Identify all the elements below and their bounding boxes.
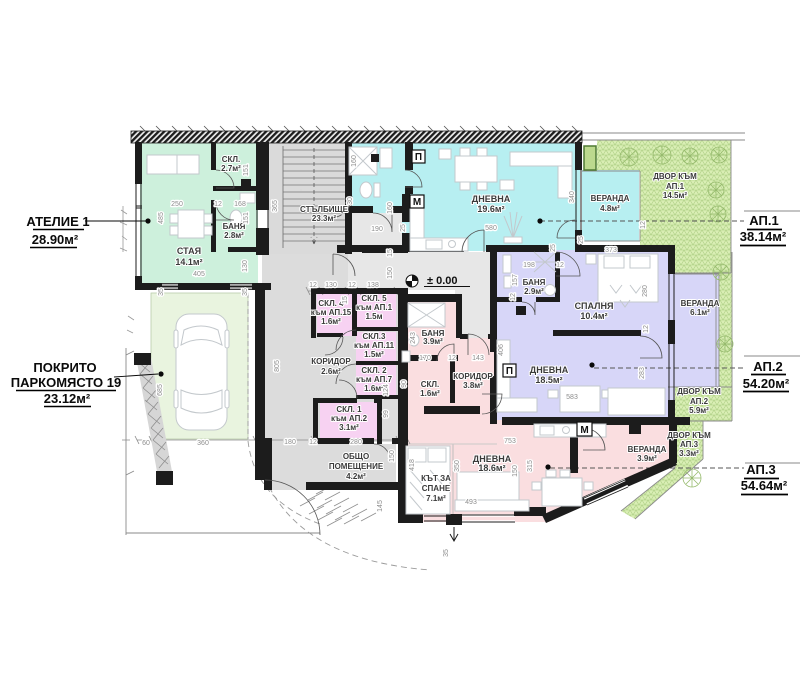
svg-text:180: 180 — [284, 439, 296, 446]
svg-text:ПОКРИТО: ПОКРИТО — [33, 360, 96, 375]
svg-text:150: 150 — [387, 267, 394, 279]
svg-text:КОРИДОР: КОРИДОР — [453, 372, 493, 381]
svg-text:АТЕЛИЕ 1: АТЕЛИЕ 1 — [26, 214, 89, 229]
svg-text:30: 30 — [347, 197, 354, 205]
svg-text:151: 151 — [243, 164, 250, 176]
svg-text:4.8м²: 4.8м² — [600, 204, 620, 213]
svg-text:към АП.2: към АП.2 — [331, 414, 368, 423]
svg-text:25: 25 — [578, 236, 585, 244]
svg-text:35: 35 — [443, 549, 450, 557]
svg-text:12: 12 — [348, 282, 356, 289]
svg-text:6.1м²: 6.1м² — [690, 308, 710, 317]
svg-text:25: 25 — [400, 224, 407, 232]
svg-text:18.5м²: 18.5м² — [535, 375, 562, 385]
svg-text:СКЛ. 4: СКЛ. 4 — [318, 299, 344, 308]
svg-text:1.6м²: 1.6м² — [364, 384, 384, 393]
svg-text:3.3м²: 3.3м² — [679, 449, 699, 458]
svg-text:ВЕРАНДА: ВЕРАНДА — [681, 299, 720, 308]
svg-text:18.6м²: 18.6м² — [478, 463, 505, 473]
svg-text:54.64м²: 54.64м² — [741, 478, 788, 493]
svg-text:М: М — [413, 197, 421, 208]
svg-text:160: 160 — [351, 155, 358, 167]
svg-text:СКЛ.3: СКЛ.3 — [363, 332, 386, 341]
svg-text:340: 340 — [569, 191, 576, 203]
svg-text:12: 12 — [510, 293, 517, 301]
svg-text:1.6м²: 1.6м² — [420, 389, 440, 398]
svg-text:ДНЕВНА: ДНЕВНА — [530, 365, 569, 375]
svg-text:АП.1: АП.1 — [666, 182, 685, 191]
svg-text:М: М — [580, 425, 588, 436]
svg-text:ПАРКОМЯСТО 19: ПАРКОМЯСТО 19 — [11, 375, 122, 390]
svg-text:5.9м²: 5.9м² — [689, 406, 709, 415]
svg-text:12: 12 — [214, 201, 222, 208]
svg-text:190: 190 — [371, 226, 383, 233]
svg-text:КОРИДОР: КОРИДОР — [311, 357, 351, 366]
svg-text:243: 243 — [410, 332, 417, 344]
svg-text:160: 160 — [387, 202, 394, 214]
svg-text:2.9м²: 2.9м² — [524, 287, 544, 296]
svg-text:към АП.1: към АП.1 — [356, 303, 393, 312]
svg-text:138: 138 — [367, 282, 379, 289]
svg-text:2.6м²: 2.6м² — [321, 367, 341, 376]
svg-text:583: 583 — [566, 394, 578, 401]
svg-text:25: 25 — [550, 244, 557, 252]
svg-text:198: 198 — [523, 262, 535, 269]
svg-text:КЪТ ЗА: КЪТ ЗА — [421, 474, 451, 483]
svg-text:280: 280 — [350, 439, 362, 446]
svg-text:753: 753 — [504, 438, 516, 445]
svg-text:250: 250 — [171, 201, 183, 208]
svg-text:П: П — [506, 366, 513, 377]
svg-text:10.4м²: 10.4м² — [580, 311, 607, 321]
svg-text:12: 12 — [448, 355, 456, 362]
svg-text:ОБЩО: ОБЩО — [343, 452, 369, 461]
svg-text:ДВОР КЪМ: ДВОР КЪМ — [667, 431, 711, 440]
svg-text:1.6м²: 1.6м² — [321, 317, 341, 326]
svg-text:124: 124 — [383, 384, 390, 396]
svg-text:ДНЕВНА: ДНЕВНА — [472, 194, 511, 204]
svg-text:1.5м: 1.5м — [365, 312, 382, 321]
svg-text:14.5м²: 14.5м² — [663, 191, 687, 200]
svg-text:170: 170 — [419, 355, 431, 362]
svg-text:АП.3: АП.3 — [746, 462, 775, 477]
svg-text:283: 283 — [639, 367, 646, 379]
svg-text:365: 365 — [272, 200, 279, 212]
svg-text:35: 35 — [242, 288, 249, 296]
svg-text:28.90м²: 28.90м² — [32, 232, 79, 247]
svg-text:360: 360 — [197, 440, 209, 447]
svg-text:АП.3: АП.3 — [680, 440, 699, 449]
svg-text:493: 493 — [465, 499, 477, 506]
svg-text:38.14м²: 38.14м² — [740, 229, 787, 244]
svg-text:към АП.11: към АП.11 — [354, 341, 395, 350]
svg-text:± 0.00: ± 0.00 — [427, 275, 458, 287]
svg-text:към АП.7: към АП.7 — [356, 375, 393, 384]
svg-text:СПАНЕ: СПАНЕ — [422, 484, 451, 493]
svg-text:14.1м²: 14.1м² — [175, 257, 202, 267]
svg-text:418: 418 — [409, 459, 416, 471]
svg-text:168: 168 — [234, 201, 246, 208]
svg-text:580: 580 — [485, 225, 497, 232]
svg-text:157: 157 — [512, 274, 519, 286]
svg-text:П: П — [415, 152, 422, 163]
svg-text:315: 315 — [527, 460, 534, 472]
svg-text:3.9м²: 3.9м² — [423, 337, 443, 346]
svg-text:АП.2: АП.2 — [753, 359, 782, 374]
svg-text:350: 350 — [454, 460, 461, 472]
svg-text:АП.1: АП.1 — [749, 213, 778, 228]
svg-text:СКЛ. 2: СКЛ. 2 — [361, 366, 387, 375]
svg-text:СТЪЛБИЩЕ: СТЪЛБИЩЕ — [300, 205, 349, 214]
svg-text:СКЛ. 5: СКЛ. 5 — [361, 294, 387, 303]
svg-text:35: 35 — [158, 288, 165, 296]
svg-text:54.20м²: 54.20м² — [743, 376, 790, 391]
svg-text:ВЕРАНДА: ВЕРАНДА — [591, 194, 630, 203]
svg-text:12: 12 — [309, 282, 317, 289]
svg-text:СТАЯ: СТАЯ — [177, 246, 201, 256]
svg-text:3.9м²: 3.9м² — [637, 454, 657, 463]
svg-text:130: 130 — [325, 282, 337, 289]
svg-text:12: 12 — [640, 221, 647, 229]
svg-text:99: 99 — [383, 410, 390, 418]
svg-text:143: 143 — [472, 355, 484, 362]
svg-text:12: 12 — [643, 325, 650, 333]
svg-text:130: 130 — [242, 260, 249, 272]
svg-text:3.1м²: 3.1м² — [339, 423, 359, 432]
svg-text:4.2м²: 4.2м² — [346, 472, 366, 481]
svg-text:2.7м²: 2.7м² — [221, 164, 241, 173]
svg-text:7.1м²: 7.1м² — [426, 494, 446, 503]
svg-text:СКЛ.: СКЛ. — [421, 380, 440, 389]
svg-text:12: 12 — [556, 262, 564, 269]
svg-text:към АП.15: към АП.15 — [311, 308, 352, 317]
svg-text:145: 145 — [377, 500, 384, 512]
svg-text:60: 60 — [142, 440, 150, 447]
svg-text:406: 406 — [498, 344, 505, 356]
svg-text:12: 12 — [309, 439, 317, 446]
svg-text:23.3м²: 23.3м² — [312, 214, 336, 223]
svg-text:АП.2: АП.2 — [690, 397, 709, 406]
svg-text:СКЛ. 1: СКЛ. 1 — [336, 405, 362, 414]
svg-text:151: 151 — [243, 212, 250, 224]
svg-text:280: 280 — [642, 285, 649, 297]
svg-text:СПАЛНЯ: СПАЛНЯ — [575, 301, 614, 311]
svg-text:2.8м²: 2.8м² — [224, 231, 244, 240]
svg-text:90: 90 — [401, 380, 408, 388]
svg-text:405: 405 — [193, 271, 205, 278]
svg-text:3.8м²: 3.8м² — [463, 381, 483, 390]
svg-text:19.6м²: 19.6м² — [477, 204, 504, 214]
svg-text:805: 805 — [274, 360, 281, 372]
svg-text:ДВОР КЪМ: ДВОР КЪМ — [653, 172, 697, 181]
svg-text:23.12м²: 23.12м² — [44, 391, 91, 406]
svg-text:БАНЯ: БАНЯ — [523, 278, 546, 287]
svg-text:485: 485 — [158, 212, 165, 224]
svg-text:685: 685 — [157, 384, 164, 396]
svg-text:15: 15 — [387, 249, 394, 257]
svg-text:373: 373 — [605, 247, 617, 254]
svg-text:150: 150 — [512, 465, 519, 477]
svg-text:15: 15 — [342, 296, 349, 304]
svg-text:1.5м²: 1.5м² — [364, 350, 384, 359]
svg-text:СКЛ.: СКЛ. — [222, 155, 241, 164]
svg-text:ПОМЕЩЕНИЕ: ПОМЕЩЕНИЕ — [329, 462, 384, 471]
svg-text:150: 150 — [389, 450, 396, 462]
svg-text:ВЕРАНДА: ВЕРАНДА — [628, 445, 667, 454]
svg-text:ДВОР КЪМ: ДВОР КЪМ — [677, 387, 721, 396]
